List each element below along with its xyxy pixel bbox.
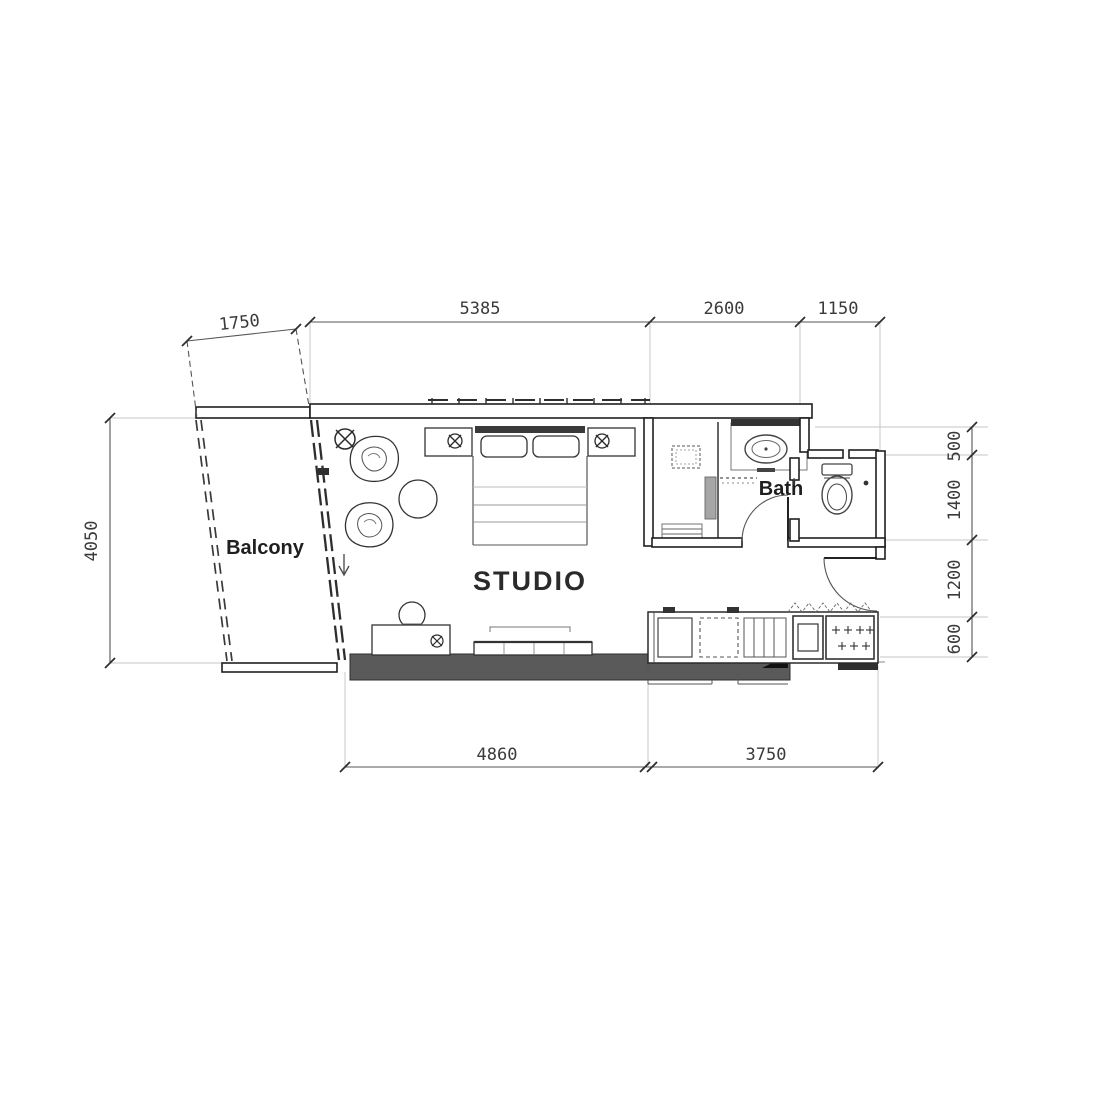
shower-glass-panel bbox=[705, 477, 716, 519]
bath-label: Bath bbox=[759, 478, 803, 500]
toilet-left-wall-b bbox=[790, 519, 799, 541]
balcony-room: Balcony bbox=[196, 407, 349, 672]
bath-room: Bath bbox=[652, 419, 807, 547]
top-window-wall bbox=[310, 404, 812, 418]
dim-left-4050: 4050 bbox=[82, 521, 102, 562]
bed-pillow-right bbox=[533, 436, 579, 457]
kitchen-counter bbox=[648, 612, 878, 663]
studio-room: STUDIO bbox=[335, 426, 635, 655]
dim-balcony-1750: 1750 bbox=[218, 311, 261, 335]
bath-door bbox=[742, 495, 788, 541]
door-handle-dot bbox=[864, 481, 869, 486]
toilet-top-wall-b bbox=[849, 450, 878, 458]
counter-tab-b bbox=[727, 607, 739, 613]
tv-console-icon bbox=[474, 627, 592, 655]
armchair-icon-top bbox=[350, 436, 398, 481]
bed-pillow-left bbox=[481, 436, 527, 457]
direction-arrow-icon bbox=[339, 554, 349, 575]
bed-headboard bbox=[475, 426, 585, 433]
toilet-bottom-wall bbox=[788, 538, 885, 547]
counter-tab-a bbox=[663, 607, 675, 613]
ceiling-light-icon bbox=[335, 429, 355, 449]
dim-top-1150: 1150 bbox=[818, 299, 859, 319]
dim-bottom-3750: 3750 bbox=[746, 745, 787, 765]
sliding-door-inner bbox=[317, 420, 345, 660]
washer-inner bbox=[676, 450, 696, 464]
upper-cabinet-dashes bbox=[788, 603, 872, 612]
floor-plan-page: Balcony bbox=[0, 0, 1100, 1100]
toilet-icon bbox=[822, 464, 852, 514]
dim-right-600: 600 bbox=[945, 624, 965, 655]
sliding-door-outer bbox=[311, 420, 339, 660]
armchair-icon-bottom bbox=[345, 503, 392, 547]
balcony-top-wall bbox=[196, 407, 310, 418]
dim-right-1400: 1400 bbox=[945, 480, 965, 521]
dim-top-2600: 2600 bbox=[704, 299, 745, 319]
balcony-label: Balcony bbox=[226, 537, 305, 559]
dim-right-1200: 1200 bbox=[945, 560, 965, 601]
balcony-railing-outer bbox=[196, 420, 227, 661]
kitchen-area bbox=[648, 603, 878, 663]
bath-bottom-wall bbox=[652, 538, 742, 547]
dim-top-5385: 5385 bbox=[460, 299, 501, 319]
coffee-table-icon bbox=[399, 480, 437, 518]
dim-right-500: 500 bbox=[945, 431, 965, 462]
studio-label: STUDIO bbox=[473, 566, 587, 596]
toilet-left-wall-a bbox=[790, 458, 799, 480]
entry-wall-stub-top bbox=[876, 547, 885, 559]
desk-chair-icon bbox=[399, 602, 425, 628]
floor-plan-svg: Balcony bbox=[0, 0, 1100, 1100]
studio-bath-partition-wall bbox=[644, 418, 653, 546]
dim-bottom-4860: 4860 bbox=[477, 745, 518, 765]
toilet-top-wall-a bbox=[808, 450, 843, 458]
toilet-right-wall bbox=[876, 451, 885, 547]
balcony-bottom-wall bbox=[222, 663, 337, 672]
toilet-wall-step-v bbox=[800, 418, 809, 452]
bed-icon bbox=[473, 426, 587, 545]
bath-door-arc bbox=[742, 495, 788, 541]
sliding-door-handle-icon bbox=[318, 468, 329, 475]
